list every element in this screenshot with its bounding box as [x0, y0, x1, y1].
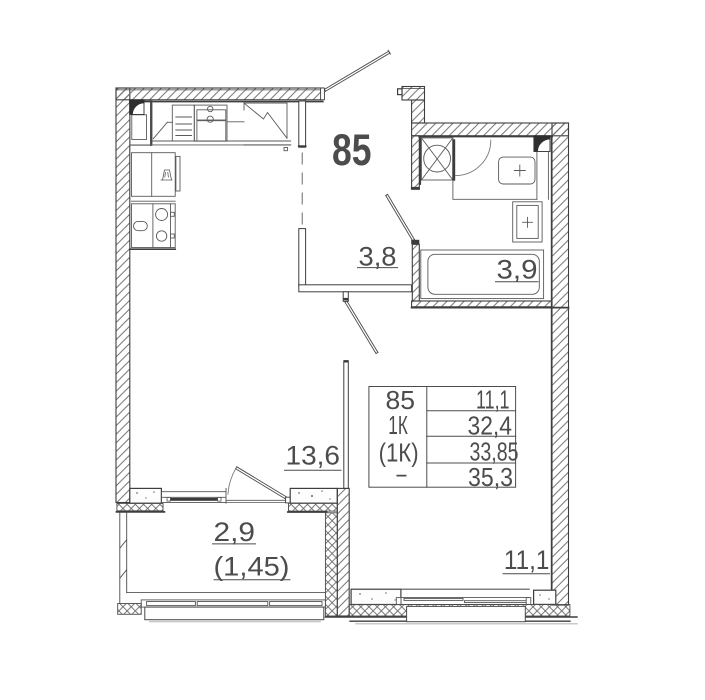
svg-text:13,6: 13,6	[286, 440, 341, 470]
svg-text:1К: 1К	[388, 410, 408, 440]
svg-text:3,8: 3,8	[359, 241, 397, 271]
svg-text:(1,45): (1,45)	[214, 552, 290, 582]
svg-text:11,1: 11,1	[504, 545, 550, 575]
svg-text:3,9: 3,9	[497, 254, 538, 284]
svg-text:–: –	[397, 458, 407, 488]
svg-text:85: 85	[332, 126, 372, 175]
svg-text:2,9: 2,9	[214, 517, 256, 547]
svg-text:35,3: 35,3	[468, 462, 513, 492]
